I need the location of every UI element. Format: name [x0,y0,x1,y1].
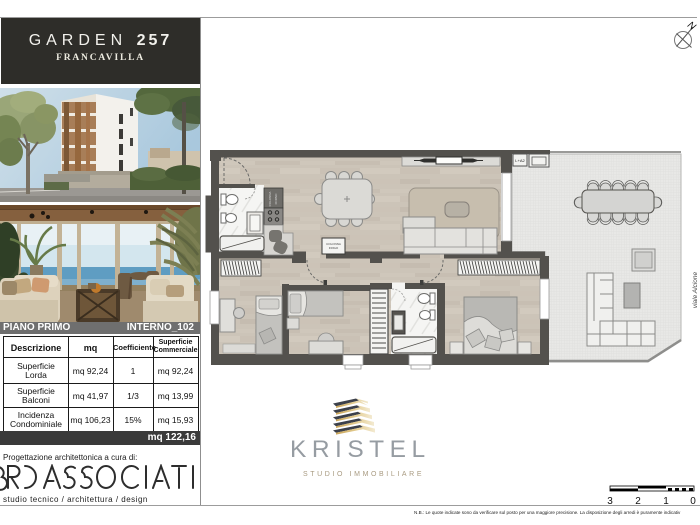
svg-text:3: 3 [607,496,613,507]
svg-text:viale Alcione: viale Alcione [692,271,699,308]
svg-text:STUDIO IMMOBILIARE: STUDIO IMMOBILIARE [303,471,424,478]
svg-text:0: 0 [690,496,696,507]
svg-text:N: N [685,20,698,34]
svg-text:FORNO: FORNO [274,193,278,204]
svg-text:FRIGO: FRIGO [329,246,339,250]
svg-text:L+A2: L+A2 [515,158,525,163]
svg-text:1: 1 [663,496,669,507]
svg-text:COLONNA: COLONNA [268,192,272,207]
svg-text:KRISTEL: KRISTEL [290,436,431,463]
svg-text:2: 2 [635,496,641,507]
